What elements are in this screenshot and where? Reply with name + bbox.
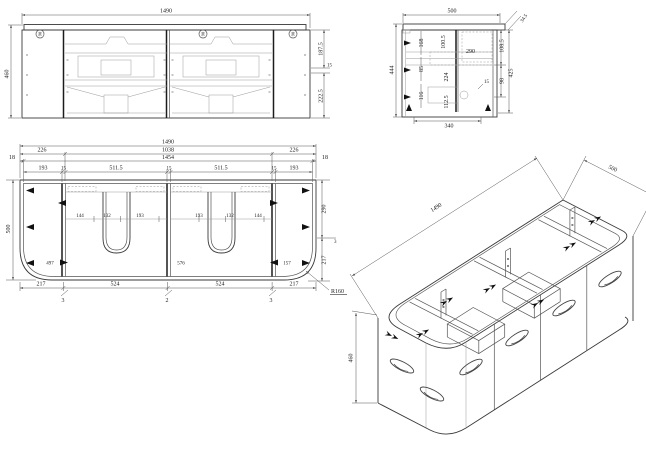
dim-label: 3 — [334, 240, 337, 245]
dim-label: 217 — [290, 282, 299, 288]
iso-upright-brackets — [441, 207, 575, 319]
dim-label: 217 — [37, 282, 46, 288]
dim-label: 132 — [226, 214, 234, 219]
dim-label: 168 — [419, 39, 425, 48]
plan-dimensions-inner: 144 132 193 193 132 144 497 576 157 — [46, 214, 291, 267]
callout-label: 2 — [166, 298, 169, 304]
dim-label: 524 — [111, 282, 120, 288]
hinge-label: 90 — [201, 31, 206, 36]
dim-label: 193 — [290, 166, 299, 172]
dim-label: 112.5 — [444, 95, 450, 108]
dim-label: 193 — [195, 214, 203, 219]
plan-view-body — [20, 180, 316, 280]
dim-label: 226 — [38, 148, 47, 154]
dim-label: 193 — [136, 214, 144, 219]
dim-label: 108.5 — [500, 39, 506, 53]
dim-label: 222.5 — [319, 89, 325, 103]
dim-label: 460 — [5, 70, 11, 79]
dim-label: 1490 — [162, 140, 174, 146]
dim-label: 15 — [167, 167, 173, 172]
dim-label: 144 — [76, 214, 84, 219]
dim-label: 15 — [327, 64, 333, 69]
dim-label: 497 — [46, 262, 54, 267]
dim-label: 193 — [39, 166, 48, 172]
dim-label: 524 — [216, 282, 225, 288]
isometric-view: 1490 500 460 — [349, 156, 646, 434]
dim-label: 217 — [322, 256, 328, 265]
dim-label: 85 — [419, 66, 425, 72]
dim-label: 34.5 — [520, 13, 529, 23]
dim-label: 500 — [6, 225, 12, 234]
dim-label: 1490 — [430, 202, 443, 214]
dim-label: 18 — [9, 155, 15, 161]
plan-dimensions-bottom: 217 524 524 217 3 2 3 — [20, 282, 316, 305]
dim-label: 290 — [466, 49, 475, 55]
dim-label: 15 — [272, 167, 278, 172]
dim-label: 15 — [484, 80, 490, 85]
dim-label: 132 — [103, 214, 111, 219]
dim-label: 340 — [445, 124, 454, 130]
dim-label: 444 — [390, 66, 396, 75]
dim-label: 500 — [448, 9, 457, 15]
iso-drawer-box — [503, 272, 560, 318]
dim-label: 1038 — [162, 148, 174, 154]
plan-dimensions-sides: 500 290 3 217 R160 — [6, 180, 347, 295]
dim-label: 224 — [444, 73, 450, 82]
dim-label: 18 — [322, 155, 328, 161]
front-view: 90 90 90 1490 460 187.5 15 222.5 — [5, 9, 333, 119]
cad-drawing-sheet: 90 90 90 1490 460 187.5 15 222.5 — [0, 0, 646, 452]
plan-view: 1490 226 1038 226 18 1454 18 193 15 511.… — [6, 140, 347, 305]
dim-label: 576 — [177, 262, 185, 267]
dim-label: 511.5 — [214, 166, 227, 172]
callout-label: 3 — [62, 298, 65, 304]
radius-label: R160 — [331, 289, 344, 295]
dim-label: 425 — [509, 69, 515, 78]
hinge-label: 90 — [38, 31, 43, 36]
front-view-body — [22, 25, 310, 119]
dim-label: 157 — [283, 262, 291, 267]
dim-label: 15 — [61, 167, 67, 172]
dim-label: 1454 — [162, 155, 174, 161]
side-view-body — [402, 24, 505, 117]
dim-label: 226 — [290, 148, 299, 154]
callout-label: 3 — [270, 298, 273, 304]
side-view: 500 444 34.5 168 85 116 100.5 224 112.5 … — [390, 9, 530, 130]
iso-dimensions: 1490 500 460 — [349, 156, 646, 403]
dim-label: 100.5 — [441, 35, 447, 49]
plan-dimensions-top: 1490 226 1038 226 18 1454 18 193 15 511.… — [9, 140, 328, 183]
hinge-label: 90 — [291, 31, 296, 36]
dim-label: 460 — [349, 354, 355, 363]
dim-label: 187.5 — [319, 42, 325, 56]
dim-label: 116 — [419, 92, 425, 101]
technical-drawing-canvas: 90 90 90 1490 460 187.5 15 222.5 — [0, 0, 646, 452]
dim-label: 511.5 — [109, 166, 122, 172]
dim-label: 1490 — [160, 9, 172, 15]
side-dimensions: 500 444 34.5 168 85 116 100.5 224 112.5 … — [390, 9, 530, 130]
dim-label: 144 — [254, 214, 262, 219]
dim-label: 500 — [607, 164, 618, 173]
dim-label: 98 — [500, 78, 506, 84]
dim-label: 290 — [322, 205, 328, 214]
